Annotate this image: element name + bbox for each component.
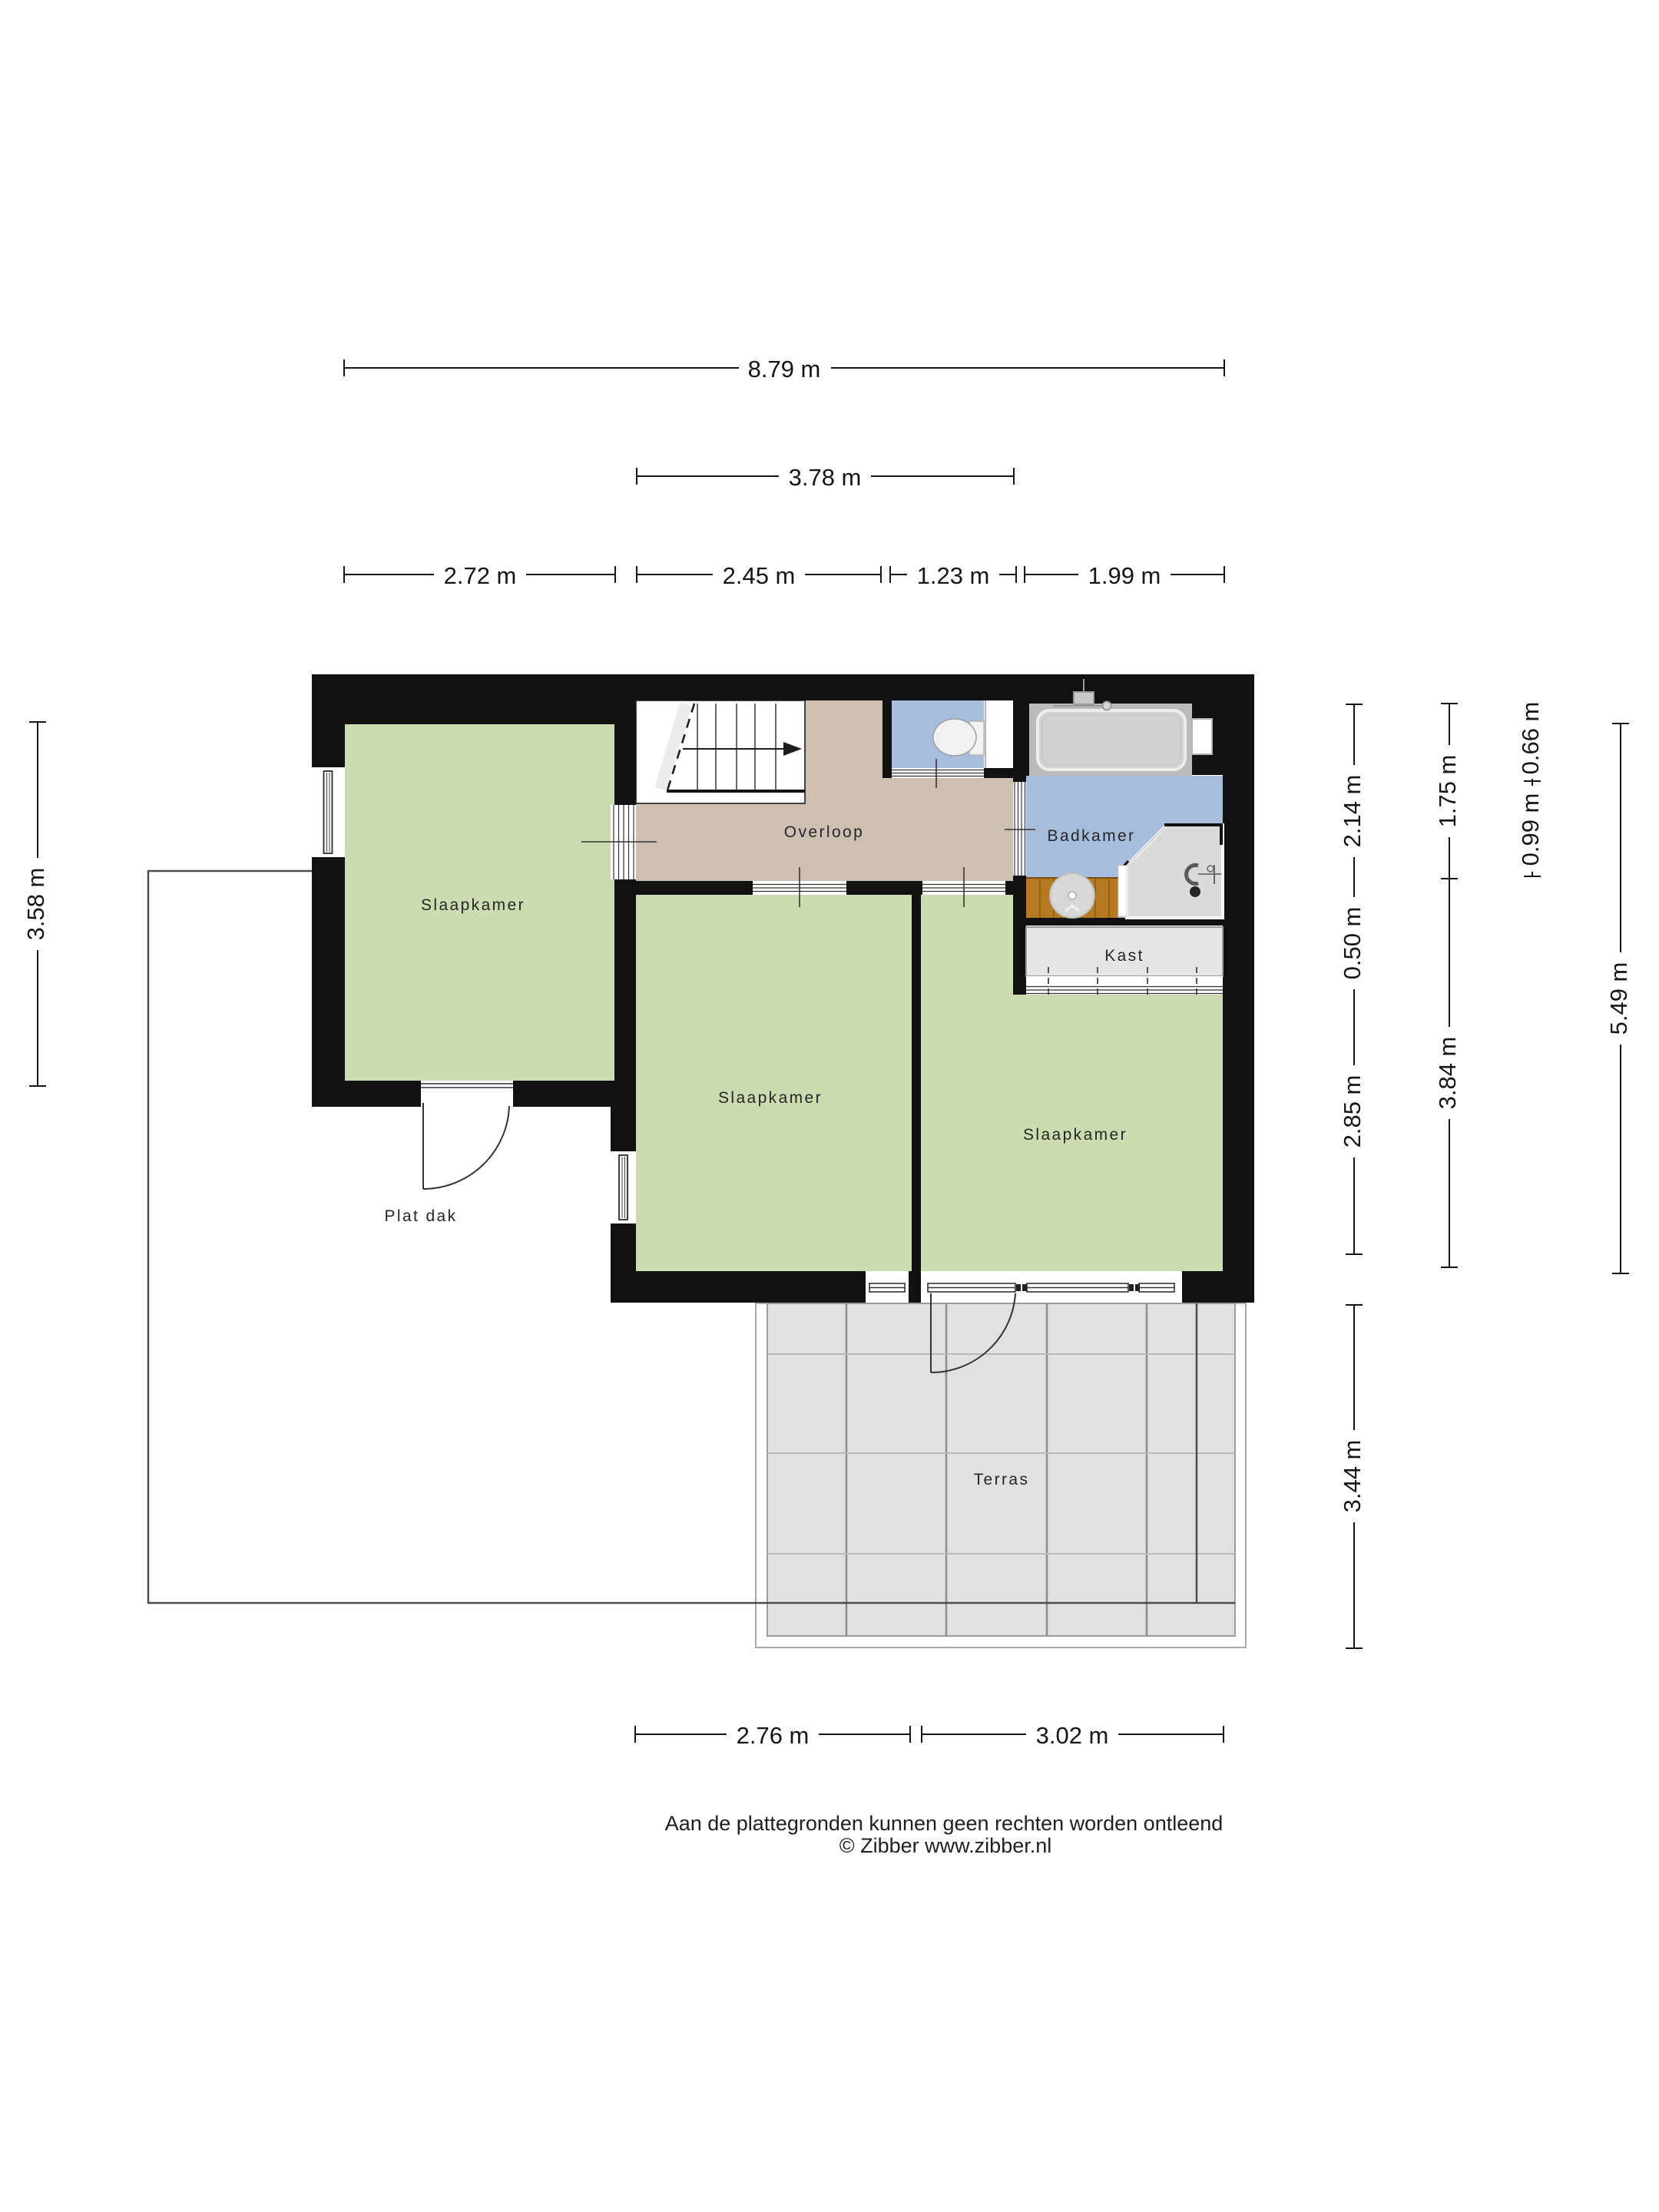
svg-text:2.72 m: 2.72 m bbox=[444, 562, 517, 589]
svg-text:0.50 m: 0.50 m bbox=[1339, 907, 1366, 980]
svg-text:2.14 m: 2.14 m bbox=[1339, 775, 1366, 848]
svg-text:© Zibber www.zibber.nl: © Zibber www.zibber.nl bbox=[839, 1834, 1052, 1857]
svg-text:3.44 m: 3.44 m bbox=[1339, 1440, 1366, 1513]
svg-text:Slaapkamer: Slaapkamer bbox=[421, 896, 525, 914]
svg-text:3.78 m: 3.78 m bbox=[789, 464, 862, 491]
svg-text:3.02 m: 3.02 m bbox=[1036, 1722, 1109, 1749]
svg-text:Plat dak: Plat dak bbox=[384, 1207, 457, 1225]
svg-text:1.75 m: 1.75 m bbox=[1434, 755, 1461, 828]
svg-text:Badkamer: Badkamer bbox=[1048, 827, 1136, 845]
svg-text:2.45 m: 2.45 m bbox=[723, 562, 796, 589]
svg-text:0.99 m: 0.99 m bbox=[1517, 793, 1544, 866]
svg-text:2.85 m: 2.85 m bbox=[1339, 1075, 1366, 1148]
svg-text:2.76 m: 2.76 m bbox=[737, 1722, 810, 1749]
svg-text:Terras: Terras bbox=[974, 1471, 1030, 1488]
svg-text:3.84 m: 3.84 m bbox=[1434, 1037, 1461, 1110]
svg-text:Slaapkamer: Slaapkamer bbox=[1023, 1126, 1128, 1144]
svg-text:0.66 m: 0.66 m bbox=[1517, 702, 1544, 775]
svg-text:1.23 m: 1.23 m bbox=[917, 562, 990, 589]
svg-text:8.79 m: 8.79 m bbox=[748, 356, 821, 382]
svg-text:1.99 m: 1.99 m bbox=[1088, 562, 1161, 589]
svg-text:Kast: Kast bbox=[1104, 947, 1144, 965]
svg-text:3.58 m: 3.58 m bbox=[22, 868, 49, 941]
svg-text:Slaapkamer: Slaapkamer bbox=[718, 1089, 823, 1107]
svg-text:5.49 m: 5.49 m bbox=[1605, 962, 1632, 1035]
svg-text:Aan de plattegronden kunnen ge: Aan de plattegronden kunnen geen rechten… bbox=[665, 1812, 1224, 1835]
svg-text:Overloop: Overloop bbox=[784, 823, 864, 841]
